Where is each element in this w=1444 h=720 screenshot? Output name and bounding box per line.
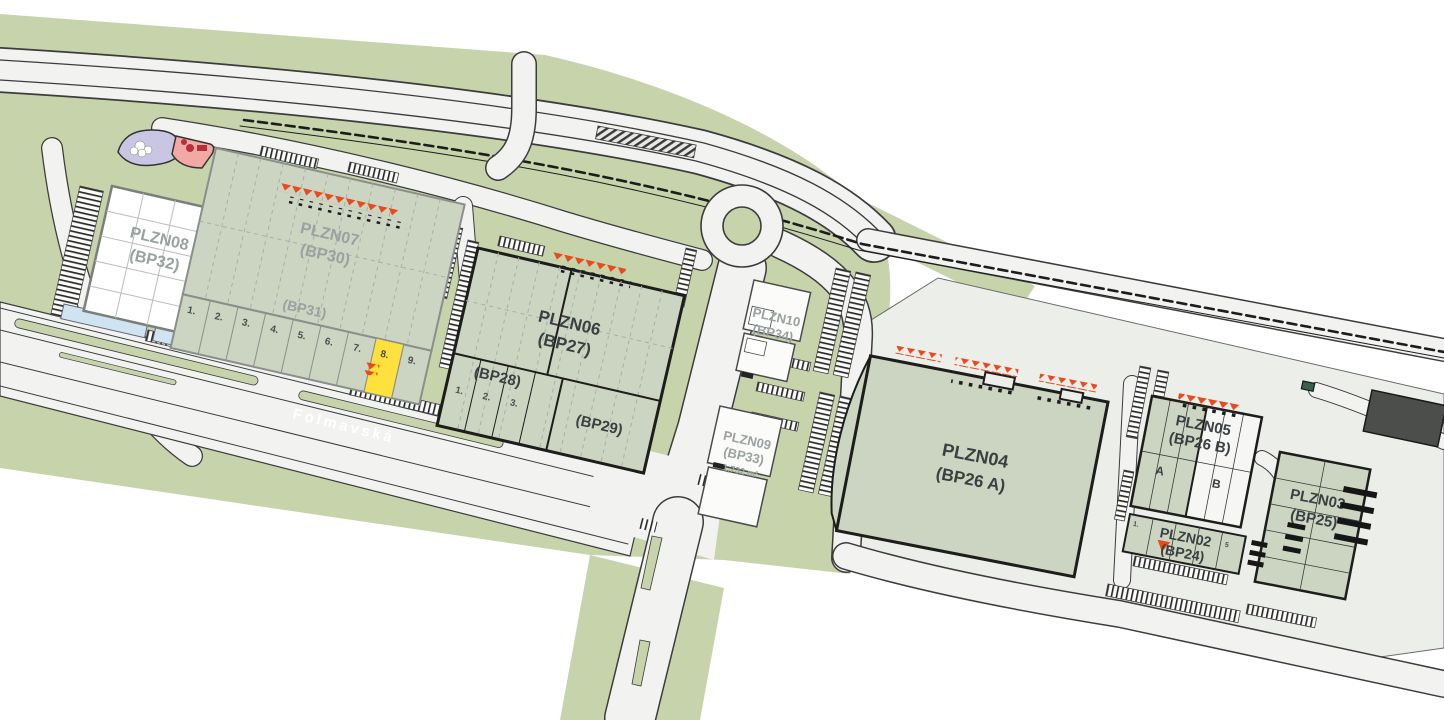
site-plan: PLZN08 (BP32) PLZN07 (BP30) (BP31) 1. 2.… (0, 0, 1444, 720)
roundabout-island (723, 207, 761, 245)
site-plan-drawing: PLZN08 (BP32) PLZN07 (BP30) (BP31) 1. 2.… (0, 0, 1444, 720)
utility-box (1301, 381, 1314, 391)
